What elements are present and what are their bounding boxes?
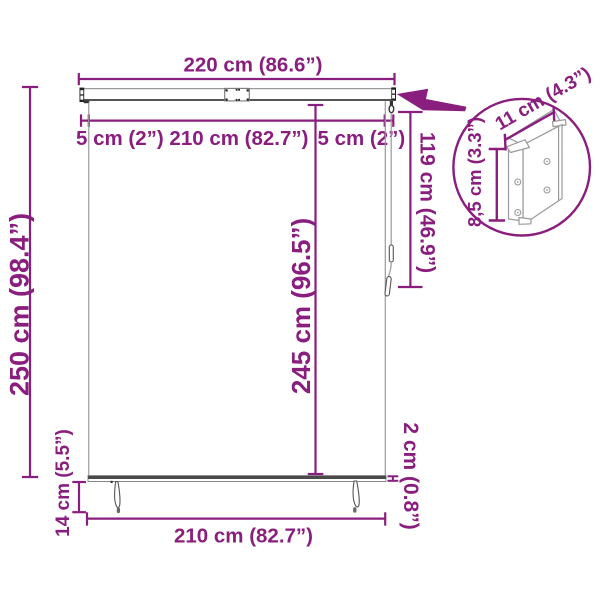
svg-text:2 cm (0.8”): 2 cm (0.8”) bbox=[399, 422, 422, 529]
svg-text:210 cm (82.7”): 210 cm (82.7”) bbox=[174, 525, 313, 548]
svg-text:250 cm (98.4”): 250 cm (98.4”) bbox=[5, 213, 35, 396]
svg-text:245 cm (96.5”): 245 cm (96.5”) bbox=[286, 218, 316, 394]
svg-text:5 cm (2”): 5 cm (2”) bbox=[318, 127, 406, 150]
svg-text:8,5 cm (3.3”): 8,5 cm (3.3”) bbox=[464, 117, 485, 227]
svg-text:14 cm (5.5”): 14 cm (5.5”) bbox=[53, 429, 74, 537]
svg-text:220 cm (86.6”): 220 cm (86.6”) bbox=[183, 54, 322, 77]
svg-text:119 cm (46.9”): 119 cm (46.9”) bbox=[416, 132, 439, 273]
svg-text:5 cm (2”) 210 cm (82.7”): 5 cm (2”) 210 cm (82.7”) bbox=[76, 127, 308, 150]
